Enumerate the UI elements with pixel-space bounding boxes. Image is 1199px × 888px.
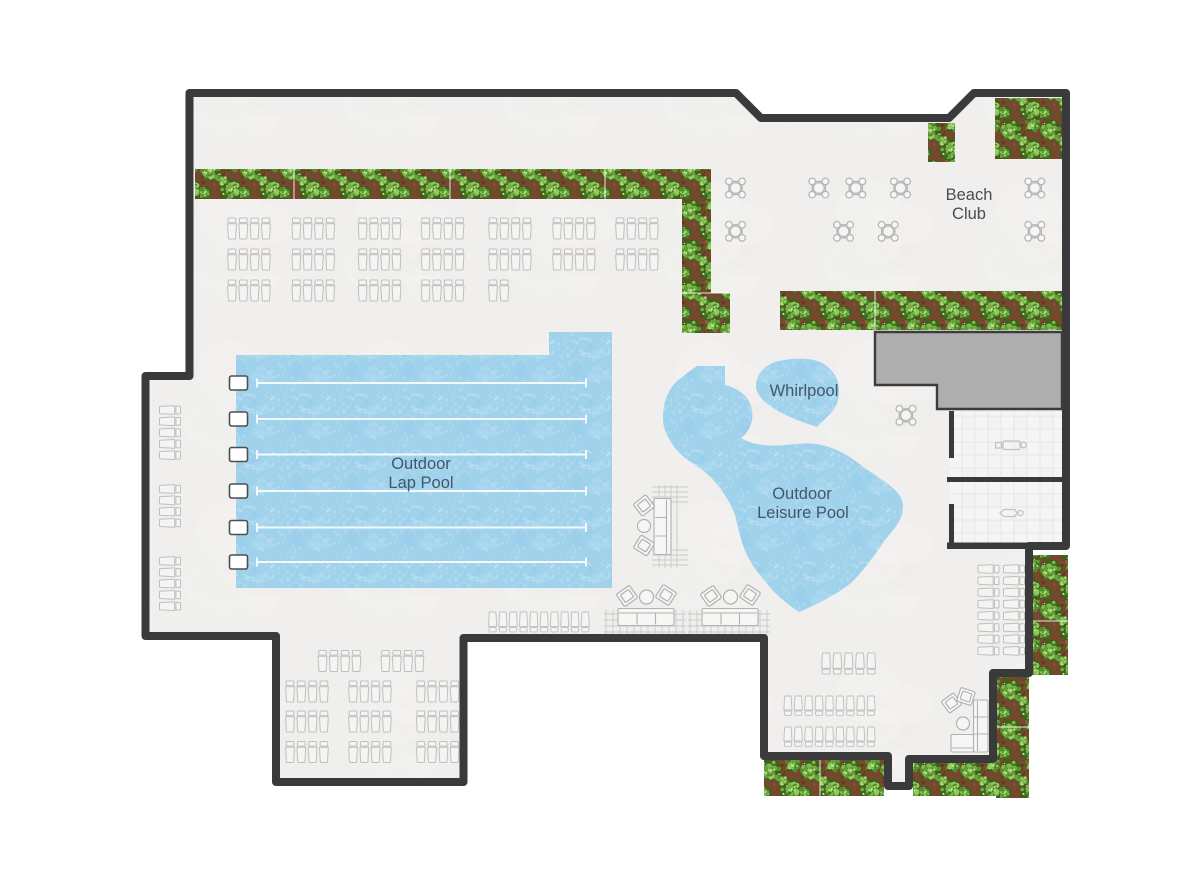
svg-text:Lap Pool: Lap Pool	[388, 474, 453, 492]
svg-text:Outdoor: Outdoor	[391, 455, 451, 473]
svg-text:Beach: Beach	[946, 186, 993, 204]
svg-text:Club: Club	[952, 205, 986, 223]
svg-text:Whirlpool: Whirlpool	[770, 382, 839, 400]
svg-text:Leisure Pool: Leisure Pool	[757, 504, 849, 522]
svg-text:Outdoor: Outdoor	[772, 485, 832, 503]
